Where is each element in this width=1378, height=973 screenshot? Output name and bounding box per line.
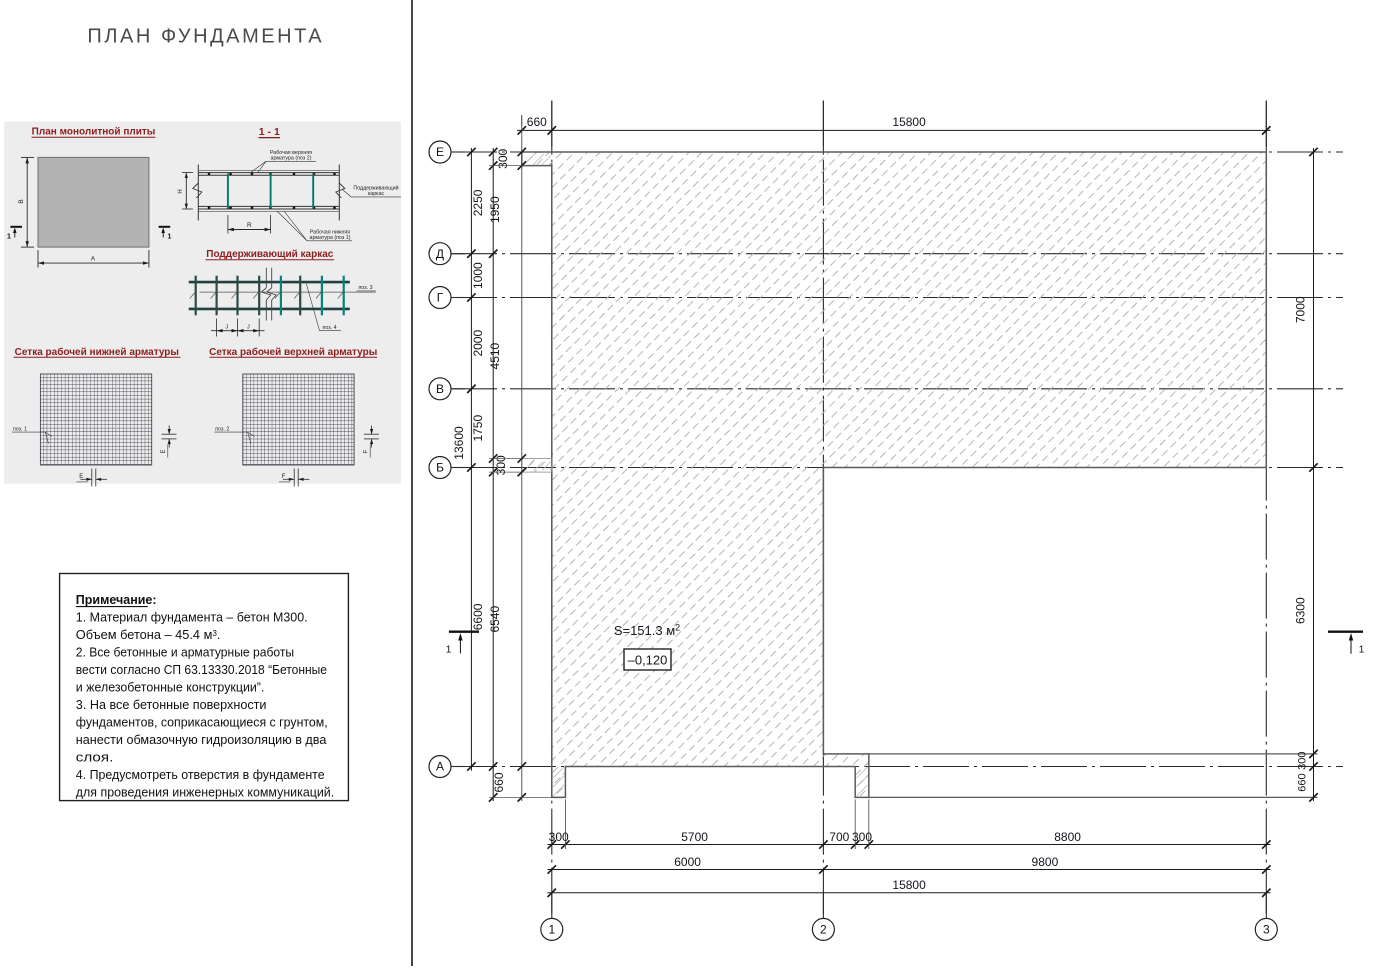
- svg-text:2: 2: [820, 923, 827, 937]
- svg-text:13600: 13600: [452, 426, 466, 460]
- svg-text:каркас: каркас: [368, 191, 385, 197]
- svg-text:4510: 4510: [488, 342, 502, 369]
- svg-text:Д: Д: [436, 247, 444, 261]
- svg-text:15800: 15800: [892, 878, 926, 892]
- svg-text:6000: 6000: [674, 855, 701, 869]
- svg-text:S=151.3 м2: S=151.3 м2: [614, 623, 680, 639]
- svg-text:R: R: [247, 222, 252, 229]
- svg-text:Г: Г: [437, 291, 444, 305]
- svg-text:1: 1: [548, 923, 555, 937]
- svg-text:E: E: [161, 449, 167, 453]
- svg-text:и железобетонные конструкции”.: и железобетонные конструкции”.: [76, 681, 265, 695]
- svg-text:2. Все бетонные и арматурные р: 2. Все бетонные и арматурные работы: [76, 646, 294, 660]
- svg-text:1. Материал фундамента – бетон: 1. Материал фундамента – бетон М300.: [76, 611, 308, 625]
- svg-text:660: 660: [492, 772, 506, 792]
- svg-text:1950: 1950: [488, 196, 502, 223]
- svg-text:1: 1: [7, 233, 11, 240]
- svg-text:1: 1: [1359, 645, 1365, 656]
- svg-text:1750: 1750: [471, 415, 485, 442]
- svg-text:слоя.: слоя.: [76, 751, 114, 765]
- svg-text:арматура (поз 1): арматура (поз 1): [310, 235, 351, 241]
- svg-text:300: 300: [1297, 752, 1309, 770]
- svg-text:1: 1: [446, 645, 452, 656]
- svg-text:8800: 8800: [1054, 830, 1081, 844]
- svg-text:Е: Е: [436, 145, 444, 159]
- svg-text:700: 700: [829, 830, 849, 844]
- svg-text:План монолитной плиты: План монолитной плиты: [32, 127, 156, 138]
- svg-text:В: В: [436, 382, 444, 396]
- svg-text:4. Предусмотреть отверстия в ф: 4. Предусмотреть отверстия в фундаменте: [76, 768, 325, 782]
- svg-text:A: A: [91, 255, 96, 262]
- svg-text:Примечание:: Примечание:: [76, 593, 157, 607]
- svg-text:H: H: [178, 189, 184, 193]
- svg-text:1000: 1000: [471, 262, 485, 289]
- svg-text:вести согласно СП 63.13330.201: вести согласно СП 63.13330.2018 “Бетонны…: [76, 663, 327, 677]
- svg-text:660: 660: [1297, 773, 1309, 791]
- svg-text:поз. 1: поз. 1: [13, 426, 27, 432]
- svg-text:Поддерживающий каркас: Поддерживающий каркас: [206, 249, 334, 260]
- svg-text:–0,120: –0,120: [628, 653, 668, 668]
- svg-text:9800: 9800: [1032, 855, 1059, 869]
- svg-text:6540: 6540: [488, 606, 502, 633]
- svg-text:660: 660: [527, 115, 547, 129]
- svg-text:B: B: [18, 199, 25, 203]
- svg-text:Б: Б: [436, 461, 444, 475]
- svg-text:J: J: [225, 324, 228, 330]
- svg-text:3. На все бетонные поверхности: 3. На все бетонные поверхности: [76, 698, 267, 712]
- svg-text:5700: 5700: [681, 830, 708, 844]
- svg-text:15800: 15800: [892, 115, 926, 129]
- svg-text:7000: 7000: [1294, 296, 1308, 323]
- svg-text:2250: 2250: [471, 189, 485, 216]
- svg-text:поз. 3: поз. 3: [358, 285, 372, 291]
- svg-text:поз. 2: поз. 2: [215, 426, 229, 432]
- svg-text:F: F: [282, 474, 286, 480]
- svg-text:300: 300: [852, 830, 872, 844]
- svg-text:для проведения инженерных комм: для проведения инженерных коммуникаций.: [76, 786, 334, 800]
- svg-text:300: 300: [549, 830, 569, 844]
- svg-text:2000: 2000: [471, 330, 485, 357]
- svg-text:E: E: [79, 474, 83, 480]
- svg-text:поз. 4: поз. 4: [322, 325, 336, 331]
- svg-text:нанести обмазочную гидроизоляц: нанести обмазочную гидроизоляцию в два: [76, 733, 327, 747]
- svg-text:6300: 6300: [1294, 597, 1308, 624]
- svg-text:Сетка рабочей верхней арматуры: Сетка рабочей верхней арматуры: [209, 346, 377, 358]
- svg-text:ПЛАН ФУНДАМЕНТА: ПЛАН ФУНДАМЕНТА: [87, 25, 324, 47]
- svg-text:Сетка рабочей нижней арматуры: Сетка рабочей нижней арматуры: [15, 346, 179, 358]
- svg-text:3: 3: [1263, 923, 1270, 937]
- svg-text:фундаментов, соприкасающиеся с: фундаментов, соприкасающиеся с грунтом,: [76, 716, 328, 730]
- svg-text:1 - 1: 1 - 1: [259, 126, 280, 138]
- svg-text:6600: 6600: [471, 603, 485, 630]
- svg-text:F: F: [363, 449, 369, 453]
- svg-text:Объем бетона – 45.4 м3.: Объем бетона – 45.4 м3.: [76, 628, 221, 642]
- svg-text:1: 1: [168, 233, 172, 240]
- svg-text:арматура (поз 2): арматура (поз 2): [271, 156, 312, 162]
- svg-text:А: А: [436, 760, 444, 774]
- svg-text:J: J: [247, 324, 250, 330]
